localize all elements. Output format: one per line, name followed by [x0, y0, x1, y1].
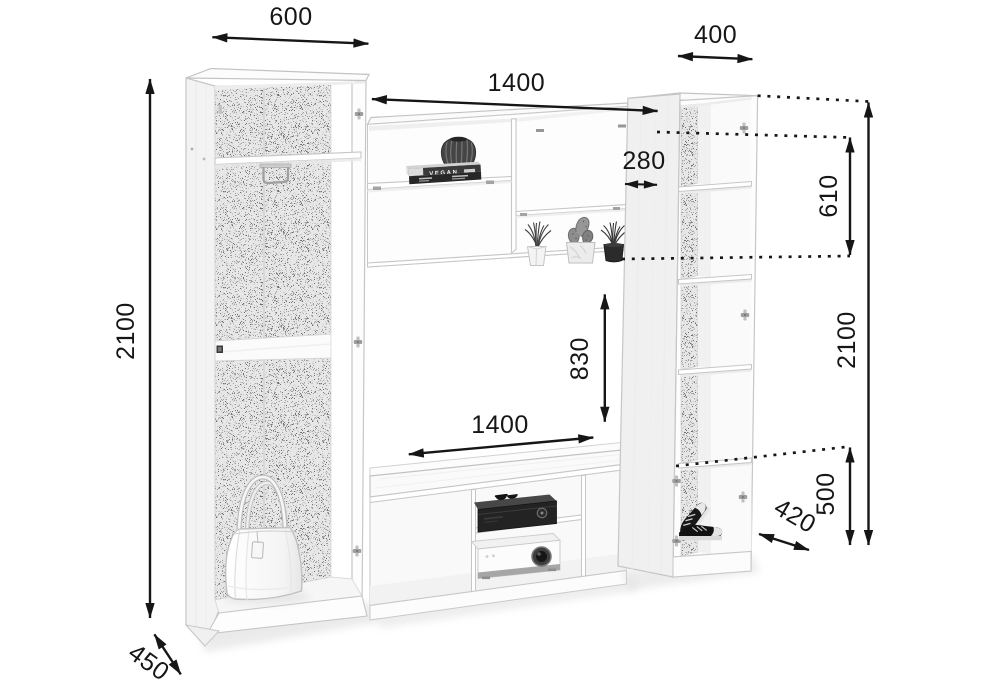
svg-text:600: 600	[269, 3, 312, 31]
svg-text:280: 280	[622, 147, 665, 175]
svg-text:1400: 1400	[471, 411, 529, 439]
svg-text:2100: 2100	[833, 311, 861, 369]
svg-text:400: 400	[694, 21, 737, 49]
svg-text:830: 830	[566, 337, 594, 380]
svg-text:610: 610	[815, 174, 843, 217]
svg-text:2100: 2100	[112, 302, 140, 360]
svg-text:500: 500	[812, 472, 840, 515]
svg-text:1400: 1400	[488, 69, 546, 97]
